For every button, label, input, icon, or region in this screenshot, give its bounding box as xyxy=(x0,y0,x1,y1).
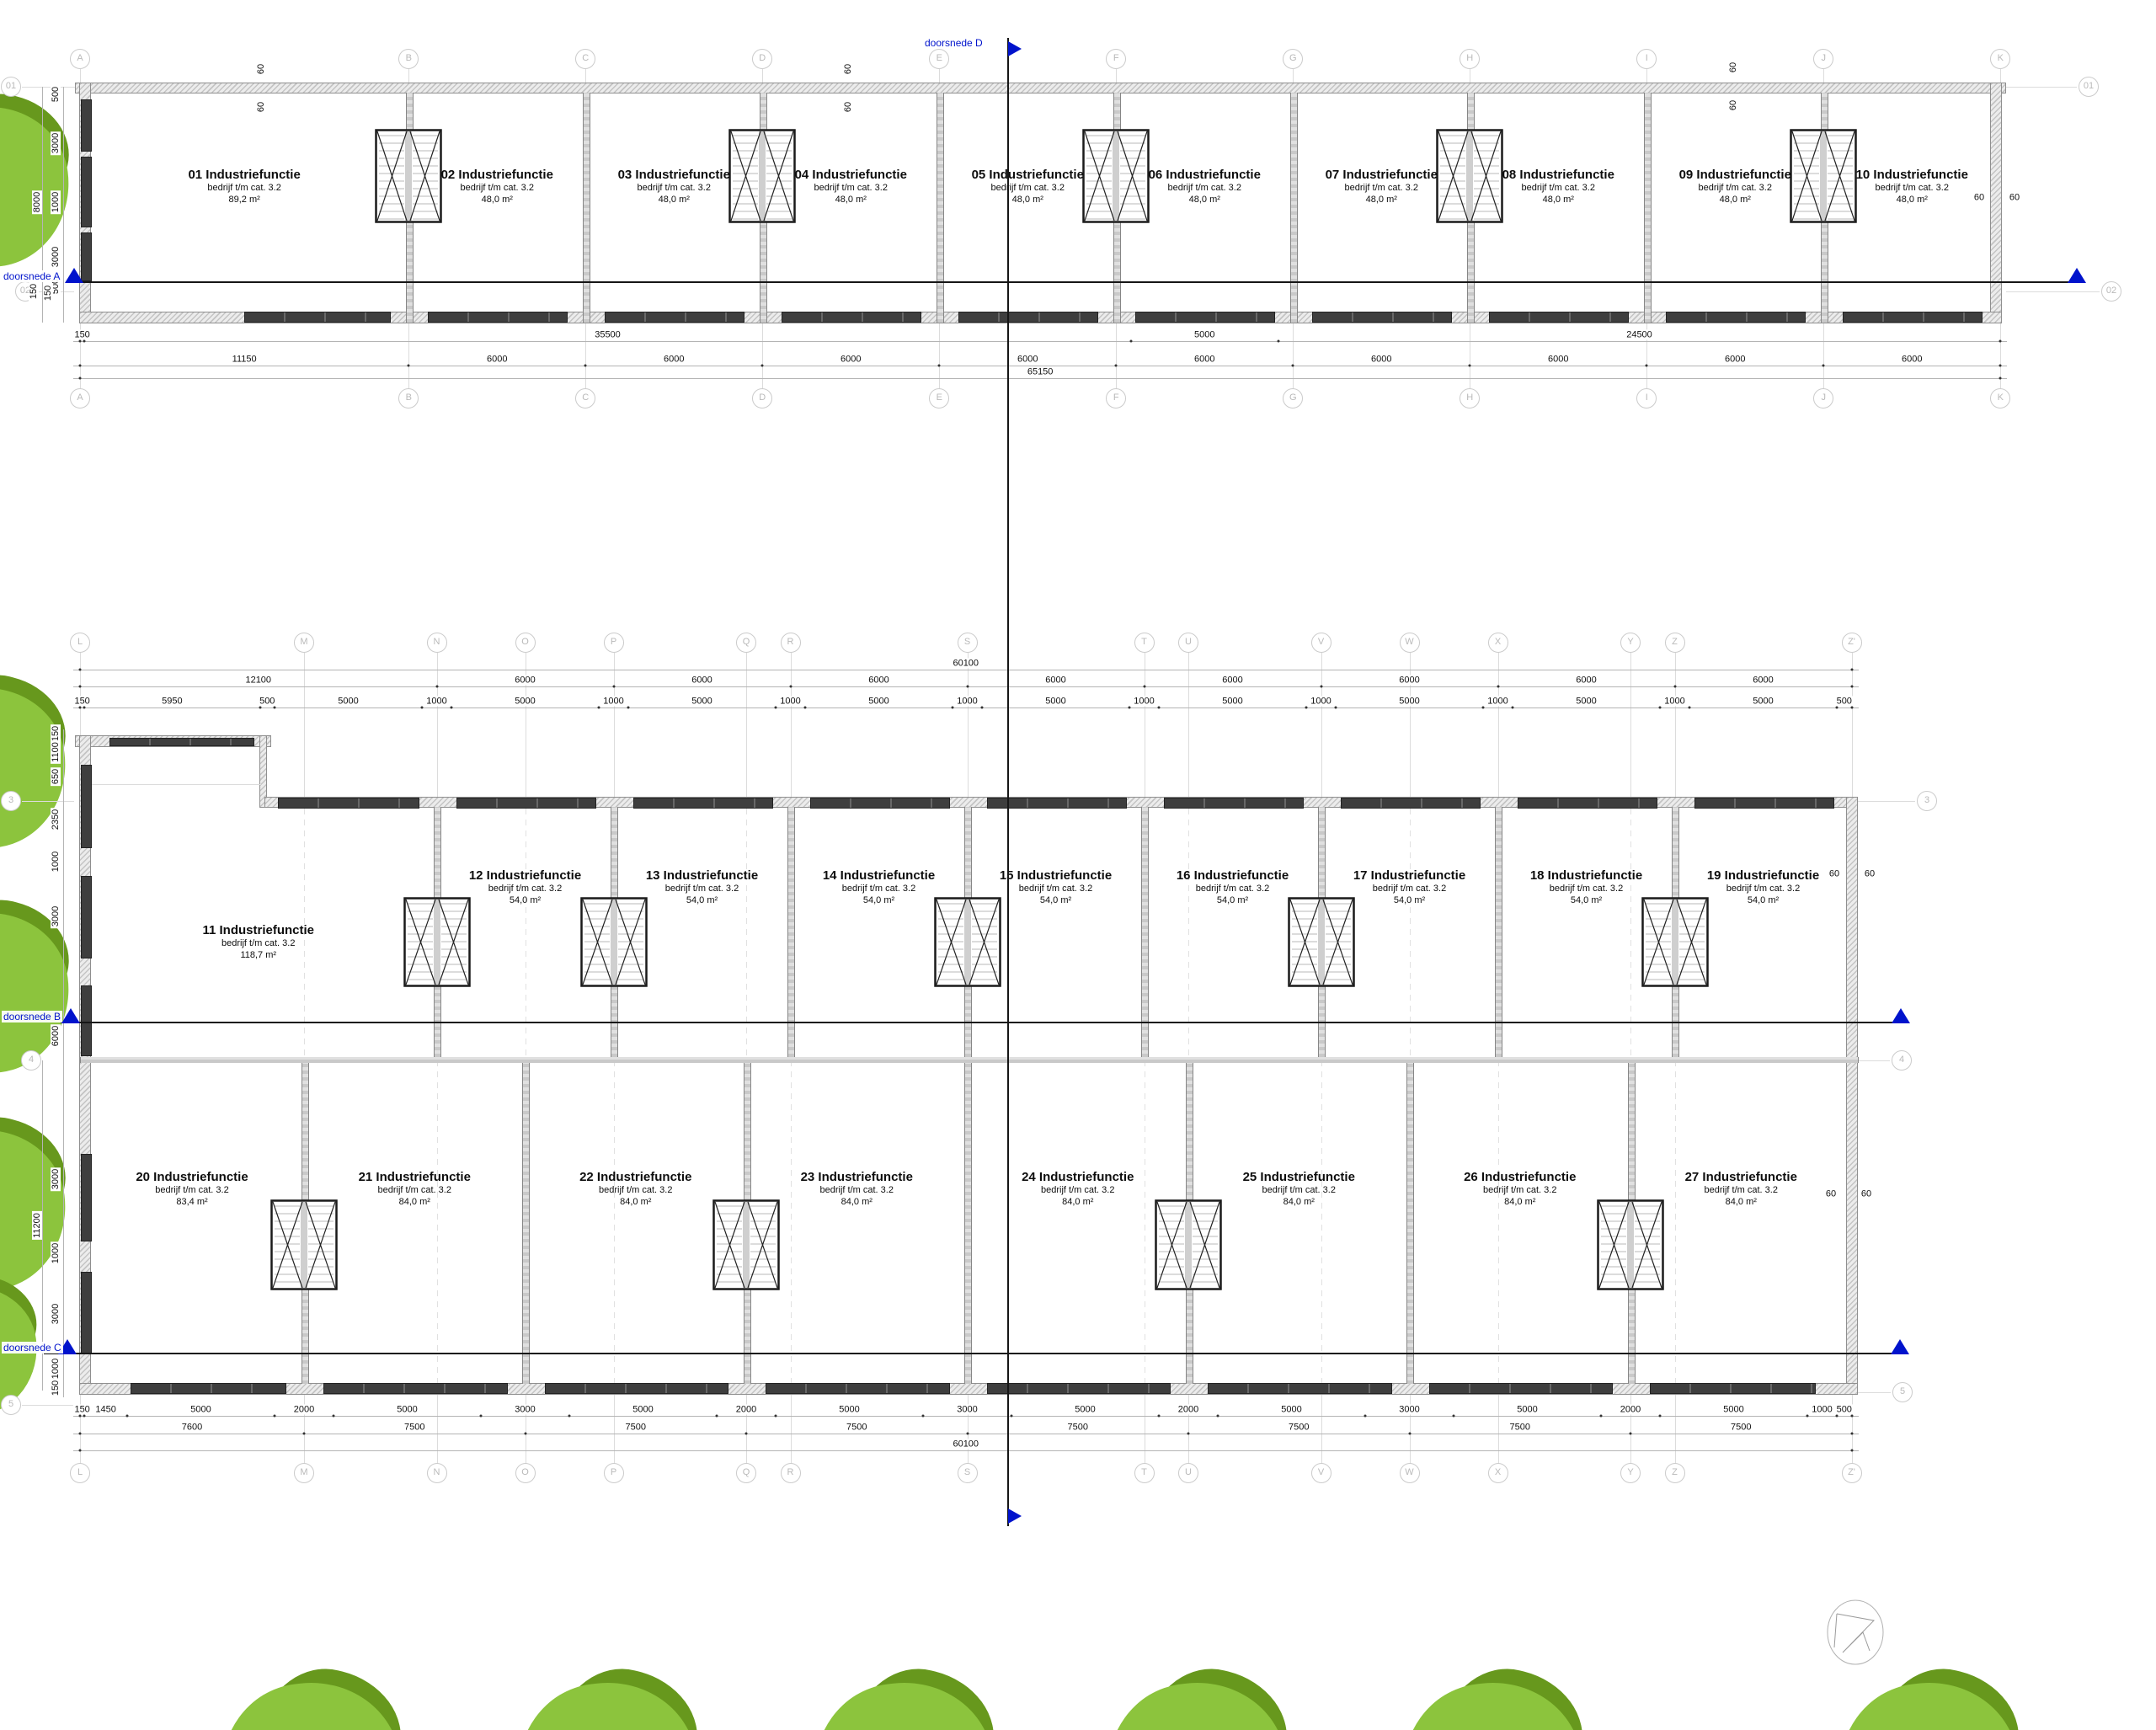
bottom-unit-15-title: 15 Industriefunctie xyxy=(1000,868,1112,883)
bottom-dimrow-above-1-label-2: 6000 xyxy=(690,675,713,685)
bottom-dimrow-above-1-label-1: 6000 xyxy=(513,675,536,685)
bottom-dimrow-below-0-tick-16 xyxy=(1659,1415,1662,1418)
bottom-unit-26-area: 84,0 m² xyxy=(1464,1196,1576,1208)
section-line-A xyxy=(66,281,2077,283)
top-dimrow-0-label-2: 5000 xyxy=(1193,329,1216,339)
grid-bubble-G: G xyxy=(1283,388,1303,408)
grid-bubble-I: I xyxy=(1636,49,1657,69)
marker-60-9: 60 xyxy=(1863,868,1876,878)
bottom-dimrow-above-1-tick-8 xyxy=(1673,686,1676,688)
bottom-unit-14: 14 Industriefunctiebedrijf t/m cat. 3.25… xyxy=(823,868,935,906)
bottom-notch-inner-line xyxy=(83,784,261,785)
top-interior-wall-3 xyxy=(937,93,944,323)
num-axis-line-0 xyxy=(22,87,76,88)
top-dimrow-2-tick-0 xyxy=(79,377,82,380)
bottom-dimrow-above-2-label-7: 5000 xyxy=(690,696,713,706)
top-unit-9-subtitle: bedrijf t/m cat. 3.2 xyxy=(1679,182,1791,194)
top-dimrow-2-tick-1 xyxy=(1999,377,2002,380)
axis-line-top-K xyxy=(2000,69,2001,83)
marker-60-6: 60 xyxy=(1972,192,1986,202)
bottom-vdim-8: 1000 xyxy=(51,1241,61,1265)
grid-bubble-S: S xyxy=(958,633,978,653)
bottom-dimrow-below-0-label-1: 1450 xyxy=(93,1404,117,1414)
bottom-dimrow-below-1-label-4: 7500 xyxy=(1066,1422,1090,1432)
bottom-lower-door-2-roller-door-icon xyxy=(1155,1199,1222,1290)
bottom-unit-14-area: 54,0 m² xyxy=(823,894,935,906)
grid-bubble-D: D xyxy=(752,49,772,69)
top-unit-10-title: 10 Industriefunctie xyxy=(1856,168,1968,182)
bottom-dimrow-above-1-label-0: 12100 xyxy=(243,675,273,685)
bottom-unit-13-subtitle: bedrijf t/m cat. 3.2 xyxy=(646,883,758,894)
section-arrow-C-1 xyxy=(1891,1339,1909,1354)
top-unit-9: 09 Industriefunctiebedrijf t/m cat. 3.24… xyxy=(1679,168,1791,206)
axis-line-top-Z xyxy=(1675,653,1676,798)
axis-line-bot-D xyxy=(762,323,763,389)
top-unit-1-area: 89,2 m² xyxy=(188,194,300,206)
axis-line-top-N xyxy=(437,653,438,798)
bottom-dimrow-below-0-label-4: 5000 xyxy=(395,1404,419,1414)
bottom-dimrow-above-0-tick-0 xyxy=(79,669,82,671)
num-axis-line-8 xyxy=(1857,1392,1891,1393)
bottom-dimrow-above-1-tick-7 xyxy=(1497,686,1499,688)
bottom-dimrow-above-2-label-5: 5000 xyxy=(513,696,536,706)
bottom-dimrow-above-2-label-10: 1000 xyxy=(955,696,979,706)
top-interior-wall-5 xyxy=(1290,93,1298,323)
bottom-building-notch-step-wall xyxy=(260,736,266,807)
axis-line-top-C xyxy=(585,69,586,83)
bottom-unit-21-subtitle: bedrijf t/m cat. 3.2 xyxy=(359,1184,471,1196)
bottom-dimrow-above-2-label-16: 1000 xyxy=(1486,696,1509,706)
num-axis-bubble-02-3: 02 xyxy=(2101,281,2121,302)
bottom-dimrow-above-0-tick-1 xyxy=(1850,669,1853,671)
bottom-unit-15-area: 54,0 m² xyxy=(1000,894,1112,906)
marker-150-12: 150 xyxy=(29,282,39,301)
bottom-unit-13-area: 54,0 m² xyxy=(646,894,758,906)
bottom-bottom-door-strip-6 xyxy=(1429,1383,1614,1394)
bottom-unit-23-subtitle: bedrijf t/m cat. 3.2 xyxy=(801,1184,913,1196)
bottom-left-wall-dark-2 xyxy=(81,985,92,1056)
top-dimrow-1-tick-6 xyxy=(1292,365,1294,367)
top-unit-2-title: 02 Industriefunctie xyxy=(441,168,553,182)
bottom-unit-24-title: 24 Industriefunctie xyxy=(1022,1170,1134,1184)
bottom-dimrow-below-0-label-14: 5000 xyxy=(1515,1404,1539,1414)
top-door-2-roller-door-icon xyxy=(1082,129,1150,223)
top-unit-3-subtitle: bedrijf t/m cat. 3.2 xyxy=(618,182,730,194)
bottom-dimrow-above-2-tick-17 xyxy=(1512,707,1514,709)
bottom-unit-21-area: 84,0 m² xyxy=(359,1196,471,1208)
top-interior-wall-7 xyxy=(1644,93,1652,323)
top-interior-wall-1 xyxy=(583,93,590,323)
floor-plan-canvas: 01 Industriefunctiebedrijf t/m cat. 3.28… xyxy=(0,0,2156,1730)
bottom-dimrow-below-0-tick-18 xyxy=(1836,1415,1838,1418)
grid-bubble-R: R xyxy=(781,633,801,653)
top-dimrow-1-tick-4 xyxy=(938,365,941,367)
bottom-top-door-strip-1 xyxy=(456,798,596,809)
bottom-dimrow-below-1-tick-3 xyxy=(745,1433,748,1435)
top-unit-9-title: 09 Industriefunctie xyxy=(1679,168,1791,182)
bottom-dimrow-above-1-tick-9 xyxy=(1850,686,1853,688)
bottom-interior-wall-lower-3 xyxy=(964,1063,972,1384)
bottom-dimrow-above-1-tick-2 xyxy=(612,686,615,688)
bottom-dimrow-above-1-tick-1 xyxy=(435,686,438,688)
top-facade-door-strip-5 xyxy=(1135,312,1275,323)
grid-bubble-Z': Z' xyxy=(1842,633,1862,653)
bottom-dimrow-above-1-label-3: 6000 xyxy=(867,675,890,685)
bottom-dimrow-above-0-label-0: 60100 xyxy=(951,658,980,668)
bottom-unit-21-title: 21 Industriefunctie xyxy=(359,1170,471,1184)
top-vdim-outer-0: 8000 xyxy=(32,190,42,214)
bottom-dimrow-below-0-tick-10 xyxy=(1011,1415,1013,1418)
bottom-dimrow-above-2-label-4: 1000 xyxy=(424,696,448,706)
bottom-unit-16-area: 54,0 m² xyxy=(1177,894,1289,906)
bottom-vdim-5: 3000 xyxy=(51,905,61,928)
top-dimrow-1-label-1: 6000 xyxy=(485,354,509,364)
axis-line-bot-P xyxy=(614,1394,615,1464)
grid-bubble-Z': Z' xyxy=(1842,1463,1862,1483)
bottom-vdim-11: 150 xyxy=(51,1379,61,1397)
top-dimrow-1-tick-0 xyxy=(79,365,82,367)
axis-line-bot-F xyxy=(1116,323,1117,389)
bottom-top-door-strip-6 xyxy=(1341,798,1481,809)
top-dimrow-1-label-7: 6000 xyxy=(1546,354,1570,364)
bottom-dimrow-above-2-label-0: 150 xyxy=(72,696,91,706)
top-dimrow-1-tick-8 xyxy=(1646,365,1648,367)
grid-bubble-M: M xyxy=(294,633,314,653)
bottom-dimrow-above-1-tick-5 xyxy=(1143,686,1145,688)
top-unit-10: 10 Industriefunctiebedrijf t/m cat. 3.24… xyxy=(1856,168,1968,206)
axis-line-top-H xyxy=(1470,69,1470,83)
grid-bubble-P: P xyxy=(604,633,624,653)
bottom-dimrow-below-1-label-2: 7500 xyxy=(624,1422,648,1432)
bottom-unit-18-subtitle: bedrijf t/m cat. 3.2 xyxy=(1530,883,1642,894)
bottom-dimrow-below-1-label-0: 7600 xyxy=(180,1422,204,1432)
num-axis-line-1 xyxy=(2001,87,2077,88)
bottom-dimrow-below-0-tick-5 xyxy=(480,1415,483,1418)
bottom-bottom-door-strip-0 xyxy=(131,1383,286,1394)
axis-line-bot-C xyxy=(585,323,586,389)
compass-logo-icon xyxy=(1826,1599,1885,1666)
grid-bubble-U: U xyxy=(1178,633,1198,653)
section-label-A: doorsnede A xyxy=(2,270,61,282)
axis-line-top-B xyxy=(408,69,409,83)
top-unit-7-subtitle: bedrijf t/m cat. 3.2 xyxy=(1326,182,1438,194)
bottom-dimrow-above-1-tick-4 xyxy=(966,686,969,688)
top-dimrow-1-label-2: 6000 xyxy=(662,354,686,364)
marker-150-13: 150 xyxy=(43,284,53,302)
axis-line-bot-J xyxy=(1823,323,1824,389)
top-dimrow-1-label-3: 6000 xyxy=(839,354,862,364)
bottom-dimrow-below-0-tick-19 xyxy=(1850,1415,1853,1418)
top-unit-8-subtitle: bedrijf t/m cat. 3.2 xyxy=(1502,182,1614,194)
top-dimrow-1-label-5: 6000 xyxy=(1193,354,1216,364)
grid-bubble-W: W xyxy=(1400,633,1420,653)
top-vdim-3: 3000 xyxy=(51,245,61,269)
top-unit-6-area: 48,0 m² xyxy=(1149,194,1261,206)
bottom-unit-27-subtitle: bedrijf t/m cat. 3.2 xyxy=(1685,1184,1797,1196)
bottom-dimrow-below-0-label-11: 2000 xyxy=(1177,1404,1200,1414)
bottom-unit-23: 23 Industriefunctiebedrijf t/m cat. 3.28… xyxy=(801,1170,913,1208)
bottom-dimrow-above-2-tick-15 xyxy=(1335,707,1337,709)
bottom-unit-13-title: 13 Industriefunctie xyxy=(646,868,758,883)
top-dimrow-1-tick-5 xyxy=(1115,365,1118,367)
bottom-dimrow-above-2-tick-4 xyxy=(421,707,424,709)
grid-bubble-Q: Q xyxy=(736,1463,756,1483)
bottom-lower-door-0-roller-door-icon xyxy=(270,1199,338,1290)
bottom-unit-20: 20 Industriefunctiebedrijf t/m cat. 3.28… xyxy=(136,1170,248,1208)
bottom-unit-24-area: 84,0 m² xyxy=(1022,1196,1134,1208)
bottom-dimrow-above-1-tick-0 xyxy=(79,686,82,688)
marker-60-3: 60 xyxy=(843,100,853,114)
grid-bubble-Y: Y xyxy=(1620,633,1641,653)
bottom-dimrow-above-2-tick-9 xyxy=(804,707,807,709)
bottom-building-middle-wall xyxy=(80,1057,1859,1063)
bottom-dimrow-above-2-label-18: 1000 xyxy=(1662,696,1686,706)
top-facade-door-strip-9 xyxy=(1843,312,1983,323)
axis-line-top-I xyxy=(1646,69,1647,83)
bottom-unit-14-subtitle: bedrijf t/m cat. 3.2 xyxy=(823,883,935,894)
bottom-dimrow-below-0-tick-15 xyxy=(1600,1415,1603,1418)
marker-60-0: 60 xyxy=(256,62,266,76)
bottom-dimrow-below-0-label-6: 5000 xyxy=(631,1404,654,1414)
top-unit-6: 06 Industriefunctiebedrijf t/m cat. 3.24… xyxy=(1149,168,1261,206)
top-unit-4-title: 04 Industriefunctie xyxy=(795,168,907,182)
bottom-unit-26-title: 26 Industriefunctie xyxy=(1464,1170,1576,1184)
grid-bubble-B: B xyxy=(398,388,419,408)
bottom-dimrow-below-2-tick-1 xyxy=(1850,1450,1853,1452)
grid-bubble-X: X xyxy=(1488,633,1508,653)
grid-bubble-J: J xyxy=(1813,49,1833,69)
grid-bubble-K: K xyxy=(1990,49,2010,69)
top-dimrow-2-line xyxy=(73,378,2007,379)
top-unit-8: 08 Industriefunctiebedrijf t/m cat. 3.24… xyxy=(1502,168,1614,206)
bottom-unit-27-title: 27 Industriefunctie xyxy=(1685,1170,1797,1184)
axis-line-top-M xyxy=(304,653,305,798)
grid-bubble-K: K xyxy=(1990,388,2010,408)
top-facade-door-strip-2 xyxy=(605,312,744,323)
top-vdim-2: 1000 xyxy=(51,190,61,214)
axis-line-top-V xyxy=(1321,653,1322,798)
bottom-dimrow-above-2-tick-2 xyxy=(259,707,261,709)
section-arrow-B-0 xyxy=(61,1008,80,1023)
bottom-interior-wall-upper-2 xyxy=(787,807,795,1057)
bottom-top-door-strip-3 xyxy=(810,798,950,809)
top-unit-5-title: 05 Industriefunctie xyxy=(972,168,1084,182)
axis-line-top-R xyxy=(791,653,792,798)
top-dimrow-1-label-0: 11150 xyxy=(231,354,259,364)
bottom-dimrow-above-1-label-6: 6000 xyxy=(1397,675,1421,685)
top-unit-10-area: 48,0 m² xyxy=(1856,194,1968,206)
axis-line-bot-X xyxy=(1498,1394,1499,1464)
bottom-unit-24: 24 Industriefunctiebedrijf t/m cat. 3.28… xyxy=(1022,1170,1134,1208)
bottom-dimrow-above-2-tick-5 xyxy=(451,707,453,709)
bottom-dimrow-below-0-label-15: 2000 xyxy=(1619,1404,1642,1414)
top-unit-7-area: 48,0 m² xyxy=(1326,194,1438,206)
bottom-bottom-door-strip-7 xyxy=(1650,1383,1816,1394)
bottom-left-wall-dark-1 xyxy=(81,876,92,958)
grid-bubble-U: U xyxy=(1178,1463,1198,1483)
grid-bubble-H: H xyxy=(1460,49,1480,69)
grid-bubble-S: S xyxy=(958,1463,978,1483)
top-unit-6-title: 06 Industriefunctie xyxy=(1149,168,1261,182)
bottom-dimrow-below-0-tick-9 xyxy=(922,1415,925,1418)
grid-bubble-E: E xyxy=(929,388,949,408)
bottom-unit-16: 16 Industriefunctiebedrijf t/m cat. 3.25… xyxy=(1177,868,1289,906)
top-dimrow-0-line xyxy=(73,341,2007,342)
grid-bubble-O: O xyxy=(515,1463,536,1483)
top-door-0-roller-door-icon xyxy=(375,129,442,223)
top-unit-4-subtitle: bedrijf t/m cat. 3.2 xyxy=(795,182,907,194)
grid-bubble-Y: Y xyxy=(1620,1463,1641,1483)
top-unit-10-subtitle: bedrijf t/m cat. 3.2 xyxy=(1856,182,1968,194)
num-axis-line-5 xyxy=(1857,801,1915,802)
bottom-unit-15: 15 Industriefunctiebedrijf t/m cat. 3.25… xyxy=(1000,868,1112,906)
bottom-vdim-1: 1100 xyxy=(51,740,61,764)
bottom-dimrow-below-0-label-13: 3000 xyxy=(1397,1404,1421,1414)
top-dimrow-1-tick-10 xyxy=(1999,365,2002,367)
grid-bubble-M: M xyxy=(294,1463,314,1483)
axis-line-bot-B xyxy=(408,323,409,389)
bottom-dimrow-below-1-label-7: 7500 xyxy=(1729,1422,1753,1432)
top-left-wall-dark-0 xyxy=(81,99,92,152)
bottom-dimrow-above-2-tick-0 xyxy=(79,707,82,709)
bottom-unit-22: 22 Industriefunctiebedrijf t/m cat. 3.28… xyxy=(579,1170,691,1208)
grid-bubble-V: V xyxy=(1311,633,1331,653)
bottom-dimrow-above-2-tick-1 xyxy=(83,707,86,709)
bottom-dimrow-below-0-label-17: 1000 xyxy=(1810,1404,1833,1414)
num-axis-bubble-3-5: 3 xyxy=(1917,791,1937,811)
num-axis-bubble-5-8: 5 xyxy=(1,1395,21,1415)
bottom-dimrow-above-2-label-8: 1000 xyxy=(778,696,802,706)
grid-bubble-C: C xyxy=(575,49,595,69)
bottom-dimrow-below-1-label-5: 7500 xyxy=(1287,1422,1310,1432)
bottom-top-door-strip-0 xyxy=(278,798,419,809)
grid-bubble-L: L xyxy=(70,1463,90,1483)
bottom-bottom-door-strip-4 xyxy=(987,1383,1171,1394)
bottom-dimrow-above-2-tick-14 xyxy=(1305,707,1308,709)
bottom-unit-23-area: 84,0 m² xyxy=(801,1196,913,1208)
grid-bubble-Z: Z xyxy=(1665,633,1685,653)
top-facade-door-strip-6 xyxy=(1312,312,1452,323)
bottom-dimrow-below-0-label-0: 150 xyxy=(72,1404,91,1414)
top-unit-8-area: 48,0 m² xyxy=(1502,194,1614,206)
bottom-lower-door-3-roller-door-icon xyxy=(1597,1199,1664,1290)
grid-bubble-O: O xyxy=(515,633,536,653)
bottom-left-wall-dark-3 xyxy=(81,1154,92,1241)
top-unit-1-title: 01 Industriefunctie xyxy=(188,168,300,182)
top-unit-5-area: 48,0 m² xyxy=(972,194,1084,206)
bottom-dimrow-above-2-tick-20 xyxy=(1836,707,1838,709)
grid-bubble-J: J xyxy=(1813,388,1833,408)
bottom-vdim-7: 3000 xyxy=(51,1167,61,1191)
bottom-unit-25: 25 Industriefunctiebedrijf t/m cat. 3.28… xyxy=(1243,1170,1355,1208)
axis-line-top-G xyxy=(1293,69,1294,83)
num-axis-line-3 xyxy=(2006,291,2100,292)
axis-line-top-F xyxy=(1116,69,1117,83)
axis-line-bot-V xyxy=(1321,1394,1322,1464)
bottom-unit-11-title: 11 Industriefunctie xyxy=(202,923,314,937)
grid-bubble-B: B xyxy=(398,49,419,69)
bottom-unit-11: 11 Industriefunctiebedrijf t/m cat. 3.21… xyxy=(202,923,314,961)
top-unit-2-area: 48,0 m² xyxy=(441,194,553,206)
axis-line-bot-H xyxy=(1470,323,1470,389)
bottom-unit-22-title: 22 Industriefunctie xyxy=(579,1170,691,1184)
bottom-upper-door-0-roller-door-icon xyxy=(403,897,471,987)
bottom-top-door-strip-8 xyxy=(1694,798,1834,809)
bottom-dimrow-below-0-tick-14 xyxy=(1453,1415,1455,1418)
top-unit-4-area: 48,0 m² xyxy=(795,194,907,206)
bottom-unit-12-area: 54,0 m² xyxy=(469,894,581,906)
bottom-left-wall-dark-0 xyxy=(81,765,92,848)
bottom-dimrow-above-2-tick-8 xyxy=(775,707,777,709)
bottom-unit-22-subtitle: bedrijf t/m cat. 3.2 xyxy=(579,1184,691,1196)
top-door-1-roller-door-icon xyxy=(728,129,796,223)
bottom-unit-19-title: 19 Industriefunctie xyxy=(1707,868,1819,883)
bottom-dimrow-below-0-tick-4 xyxy=(333,1415,335,1418)
axis-line-bot-Z xyxy=(1675,1394,1676,1464)
top-dimrow-0-label-0: 150 xyxy=(72,329,91,339)
bottom-dimrow-below-0-tick-11 xyxy=(1158,1415,1161,1418)
num-axis-line-6 xyxy=(1857,1060,1890,1061)
grid-bubble-V: V xyxy=(1311,1463,1331,1483)
top-building-right-wall xyxy=(1991,83,2001,323)
bottom-dimrow-above-2-tick-21 xyxy=(1850,707,1853,709)
bottom-dimrow-above-2-label-9: 5000 xyxy=(867,696,890,706)
num-axis-line-7 xyxy=(22,1405,74,1406)
top-door-3-roller-door-icon xyxy=(1436,129,1503,223)
marker-60-1: 60 xyxy=(256,100,266,114)
section-line-B xyxy=(61,1022,1901,1023)
bottom-dimrow-below-2-label-0: 60100 xyxy=(951,1439,980,1449)
axis-line-top-D xyxy=(762,69,763,83)
grid-bubble-C: C xyxy=(575,388,595,408)
bottom-upper-door-1-roller-door-icon xyxy=(580,897,648,987)
grid-bubble-Z: Z xyxy=(1665,1463,1685,1483)
marker-60-2: 60 xyxy=(843,62,853,76)
bottom-upper-door-2-roller-door-icon xyxy=(934,897,1001,987)
top-facade-door-strip-7 xyxy=(1489,312,1629,323)
bottom-dimrow-above-2-label-19: 5000 xyxy=(1751,696,1774,706)
bottom-vdim-line-inner xyxy=(63,729,64,1397)
bottom-unit-25-area: 84,0 m² xyxy=(1243,1196,1355,1208)
marker-60-4: 60 xyxy=(1728,61,1738,74)
grid-bubble-A: A xyxy=(70,49,90,69)
marker-60-11: 60 xyxy=(1860,1188,1873,1199)
bottom-unit-16-title: 16 Industriefunctie xyxy=(1177,868,1289,883)
bottom-vdim-6: 6000 xyxy=(51,1024,61,1048)
top-building-top-wall xyxy=(76,83,2005,93)
bottom-notch-dark xyxy=(109,738,254,746)
axis-line-bot-T xyxy=(1145,1394,1145,1464)
bottom-dimrow-above-2-label-13: 5000 xyxy=(1220,696,1244,706)
num-axis-bubble-01-0: 01 xyxy=(1,77,21,97)
section-arrow-A-0 xyxy=(65,268,83,283)
bottom-top-door-strip-2 xyxy=(633,798,773,809)
top-unit-2: 02 Industriefunctiebedrijf t/m cat. 3.24… xyxy=(441,168,553,206)
bottom-left-wall-dark-4 xyxy=(81,1272,92,1354)
bottom-unit-21: 21 Industriefunctiebedrijf t/m cat. 3.28… xyxy=(359,1170,471,1208)
bottom-vdim-2: 650 xyxy=(51,767,61,786)
bottom-unit-22-area: 84,0 m² xyxy=(579,1196,691,1208)
bottom-unit-18-area: 54,0 m² xyxy=(1530,894,1642,906)
bottom-dimrow-above-2-tick-7 xyxy=(627,707,630,709)
bottom-dimrow-below-0-tick-12 xyxy=(1217,1415,1219,1418)
bottom-vdim-9: 3000 xyxy=(51,1302,61,1326)
top-unit-4: 04 Industriefunctiebedrijf t/m cat. 3.24… xyxy=(795,168,907,206)
bottom-dimrow-below-0-tick-13 xyxy=(1364,1415,1367,1418)
bottom-unit-17-title: 17 Industriefunctie xyxy=(1353,868,1465,883)
top-dimrow-1-tick-9 xyxy=(1822,365,1825,367)
bottom-dimrow-above-2-tick-11 xyxy=(981,707,984,709)
